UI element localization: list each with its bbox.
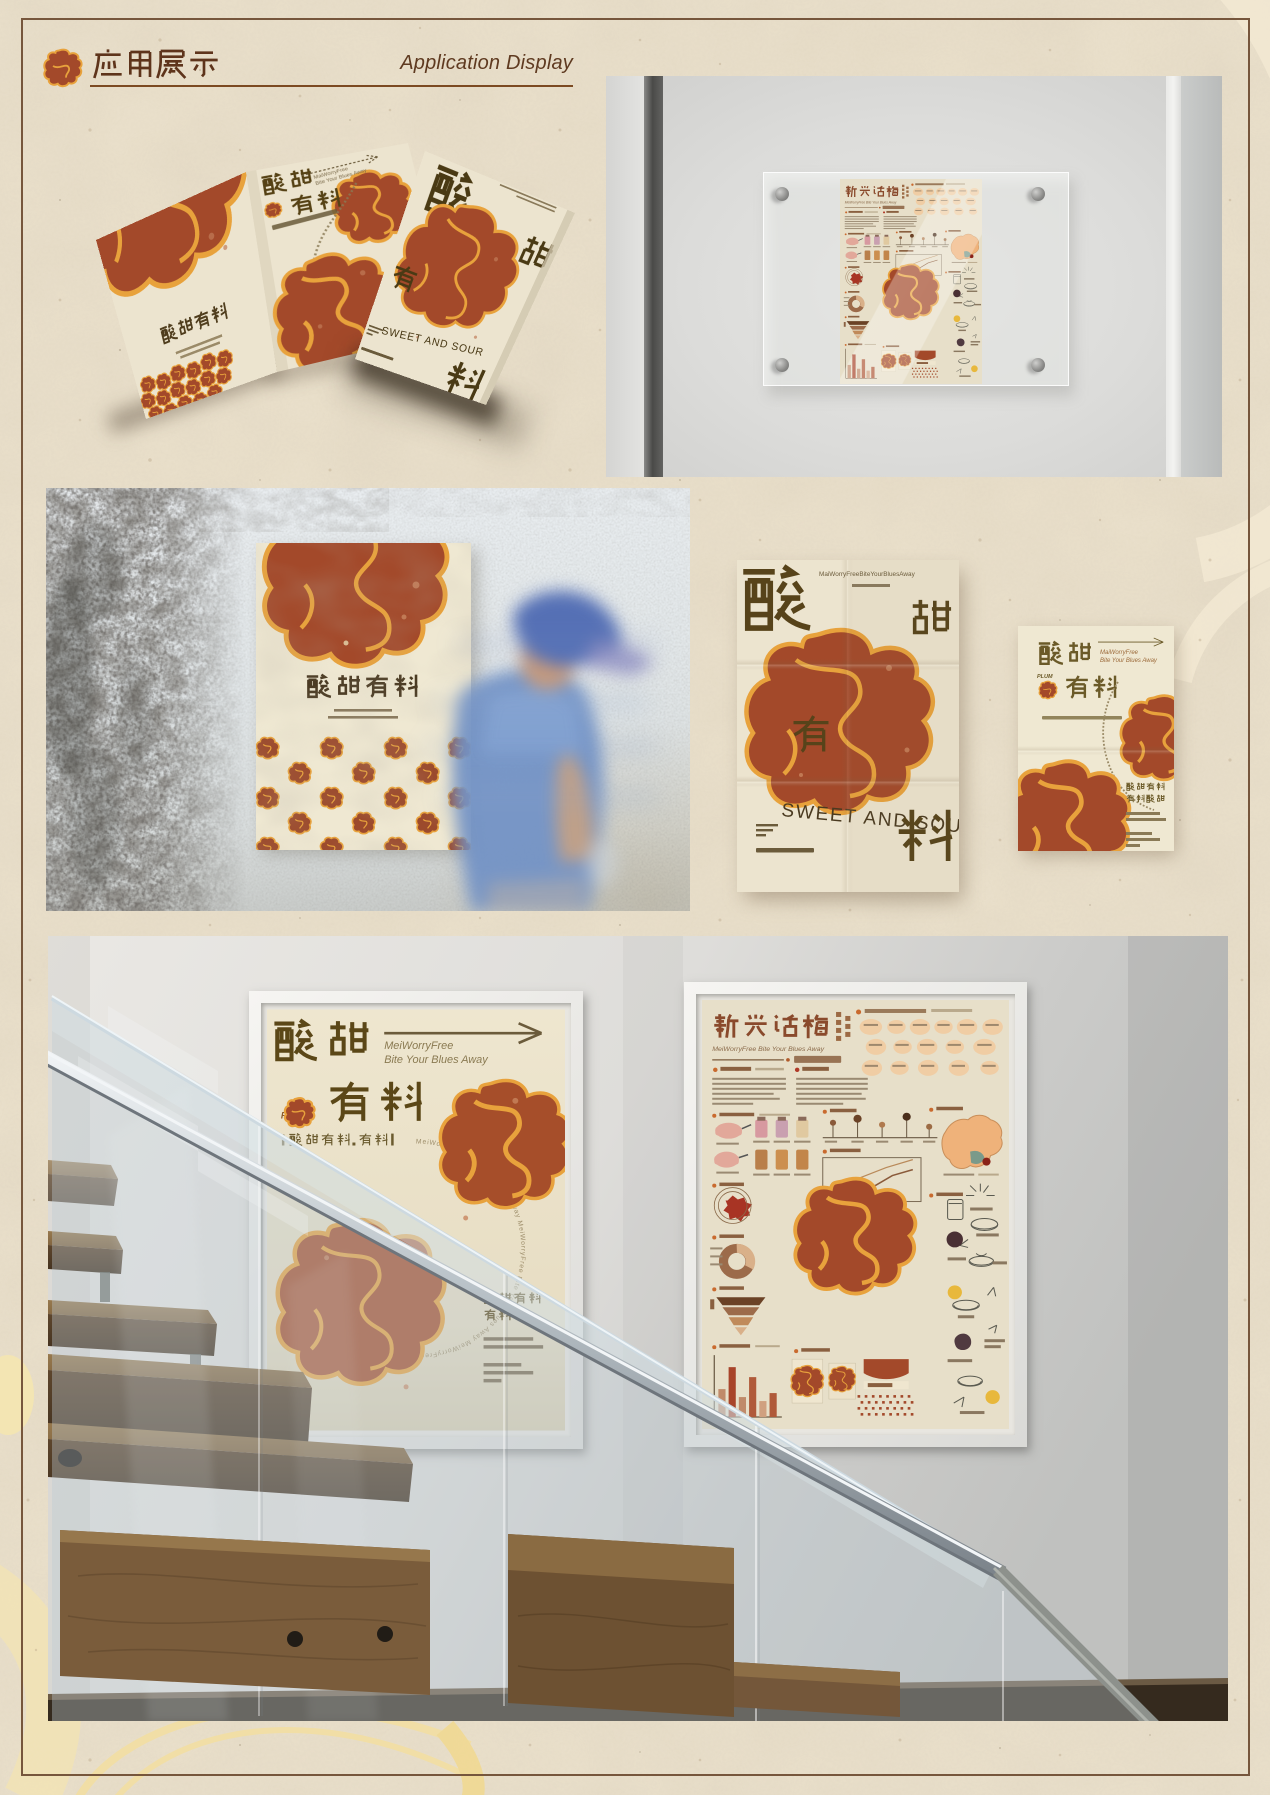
svg-text:MaiWorryFree: MaiWorryFree	[1100, 650, 1139, 656]
svg-text:PLUM: PLUM	[1037, 674, 1053, 680]
svg-text:Bite Your Blues Away: Bite Your Blues Away	[1100, 658, 1158, 664]
